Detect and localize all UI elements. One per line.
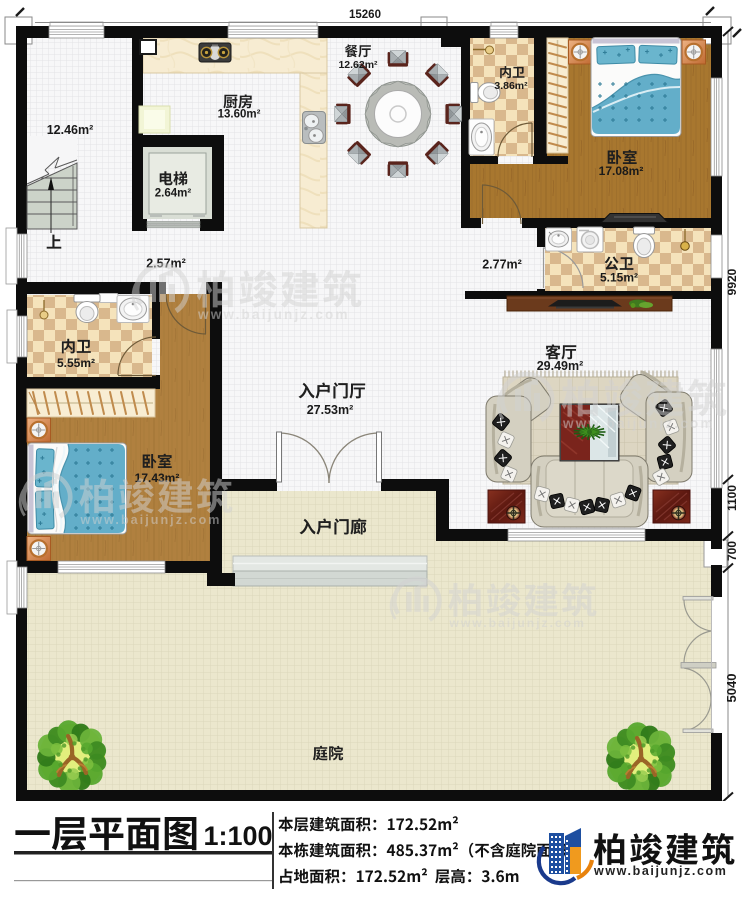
svg-text:www.baijunjz.com: www.baijunjz.com: [197, 307, 350, 322]
svg-text:2.77m²: 2.77m²: [482, 258, 522, 272]
svg-text:15260: 15260: [349, 9, 381, 21]
svg-text:13.60m²: 13.60m²: [218, 109, 261, 121]
svg-text:17.08m²: 17.08m²: [599, 164, 644, 178]
svg-text:www.baijunjz.com: www.baijunjz.com: [79, 513, 221, 527]
svg-text:www.baijunjz.com: www.baijunjz.com: [593, 864, 727, 878]
svg-text:27.53m²: 27.53m²: [307, 403, 354, 417]
svg-text:www.baijunjz.com: www.baijunjz.com: [562, 416, 715, 431]
svg-text:5040: 5040: [724, 674, 739, 703]
svg-text:9920: 9920: [725, 268, 739, 295]
svg-text:1:100: 1:100: [203, 821, 272, 851]
svg-text:12.62m²: 12.62m²: [338, 59, 378, 71]
svg-text:12.46m²: 12.46m²: [47, 123, 94, 137]
svg-text:29.49m²: 29.49m²: [537, 359, 584, 373]
svg-text:3.86m²: 3.86m²: [494, 80, 528, 92]
svg-text:700: 700: [725, 541, 739, 561]
svg-text:1100: 1100: [725, 485, 739, 511]
svg-text:2.64m²: 2.64m²: [155, 188, 192, 200]
svg-text:www.baijunjz.com: www.baijunjz.com: [448, 616, 585, 630]
svg-text:5.55m²: 5.55m²: [57, 356, 95, 370]
svg-text:5.15m²: 5.15m²: [600, 271, 638, 285]
